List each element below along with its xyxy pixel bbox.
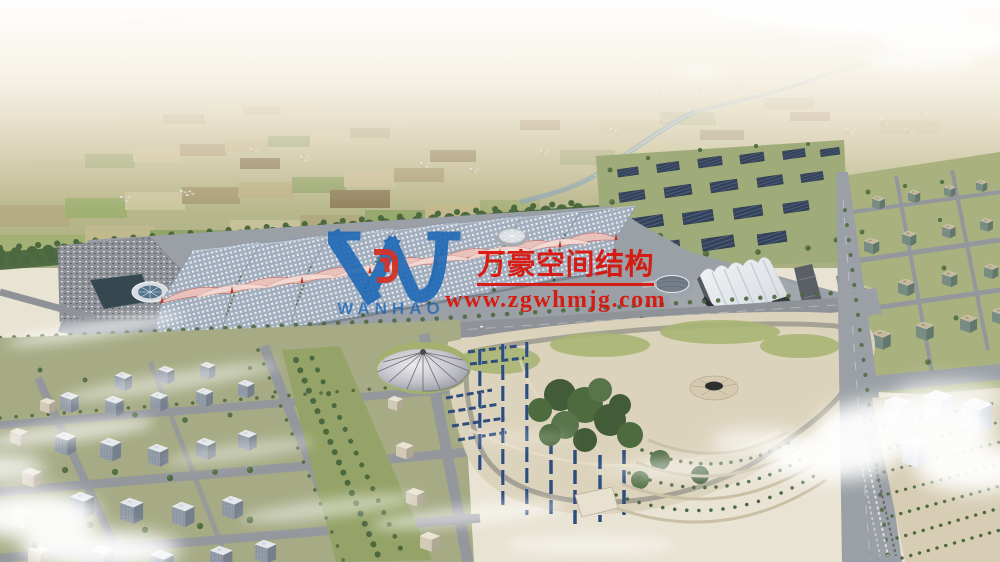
aerial-render: WANHAO 万豪空间结构 www.zgwhmjg.com [0,0,1000,562]
logo-wordmark: WANHAO [337,299,444,318]
watermark-title-cn: 万豪空间结构 [477,249,654,286]
tent-dome [375,342,471,394]
glass-cone [690,376,738,400]
watermark-url: www.zgwhmjg.com [445,287,666,314]
